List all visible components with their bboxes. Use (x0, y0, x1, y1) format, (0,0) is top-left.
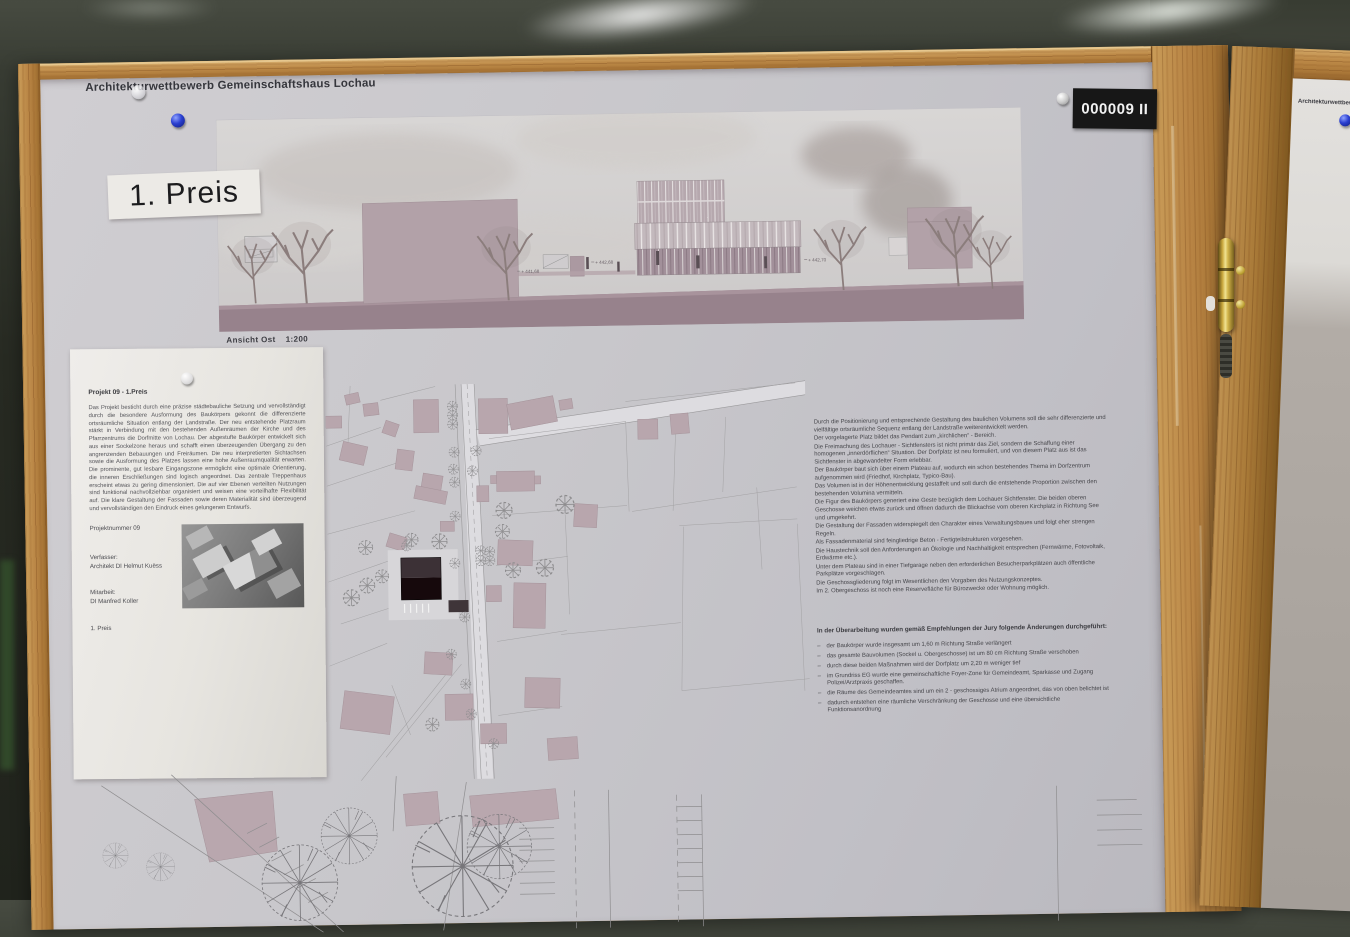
detail-trees (102, 805, 533, 924)
revision-item: im Grundriss EG wurde eine gemeinschaftl… (818, 669, 1110, 688)
svg-text:+ 442,68: + 442,68 (595, 260, 614, 265)
elevation-caption-scale: 1:200 (286, 334, 309, 343)
ceiling-light (80, 0, 220, 20)
author-name: Architekt DI Helmut Kuëss (90, 563, 162, 572)
prize-label-text: 1. Preis (129, 175, 240, 213)
elevation-caption-title: Ansicht Ost (226, 335, 275, 345)
entry-number-badge: 000009 II (1073, 88, 1157, 129)
entry-number-text: 000009 II (1081, 100, 1148, 118)
detail-plan-drawing (96, 759, 1178, 936)
elevation-caption: Ansicht Ost1:200 (226, 334, 308, 344)
prize-line: 1. Preis (90, 625, 111, 633)
presentation-board: Architekturwettbewerb Gemeinschaftshaus … (18, 45, 1241, 930)
second-board-title: Architekturwettbewerb (1298, 99, 1350, 107)
pushpin-blue (1339, 114, 1350, 126)
jury-body-text: Das Projekt besticht durch eine präzise … (88, 403, 306, 514)
collaborator-label: Mitarbeit: (90, 589, 116, 597)
author-label: Verfasser: (90, 554, 118, 562)
description-paragraph: Die Figur des Baukörpers generiert eine … (815, 495, 1107, 522)
jury-heading: Projekt 09 - 1.Preis (88, 387, 305, 396)
site-plan-drawing (325, 379, 811, 786)
ceiling-light (518, 0, 762, 52)
svg-text:+ 441,68: + 441,68 (521, 269, 540, 274)
revision-item: dadurch entstehen eine räumliche Verschr… (818, 696, 1110, 715)
project-number: Projektnummer 09 (90, 525, 141, 534)
revision-notes: In der Überarbeitung wurden gemäß Empfeh… (817, 623, 1110, 718)
pushpin-clear (131, 85, 145, 99)
existing-buildings (325, 387, 694, 764)
collaborator-name: DI Manfred Koller (90, 598, 138, 606)
jury-report-sheet: Projekt 09 - 1.Preis Das Projekt bestich… (70, 347, 327, 779)
background-left-foliage (0, 560, 14, 770)
detail-buildings (194, 787, 559, 863)
prize-label: 1. Preis (107, 169, 261, 219)
project-description: Durch die Positionierung und entsprechen… (814, 415, 1109, 598)
description-paragraph: Die Freimachung des Lochauer - Sichtfens… (814, 440, 1106, 467)
elevation-drawing: + 441,68 + 442,68 + 442,70 (216, 107, 1024, 332)
svg-text:+ 442,70: + 442,70 (808, 257, 827, 262)
model-photo (182, 523, 305, 608)
hinge (1206, 238, 1254, 378)
